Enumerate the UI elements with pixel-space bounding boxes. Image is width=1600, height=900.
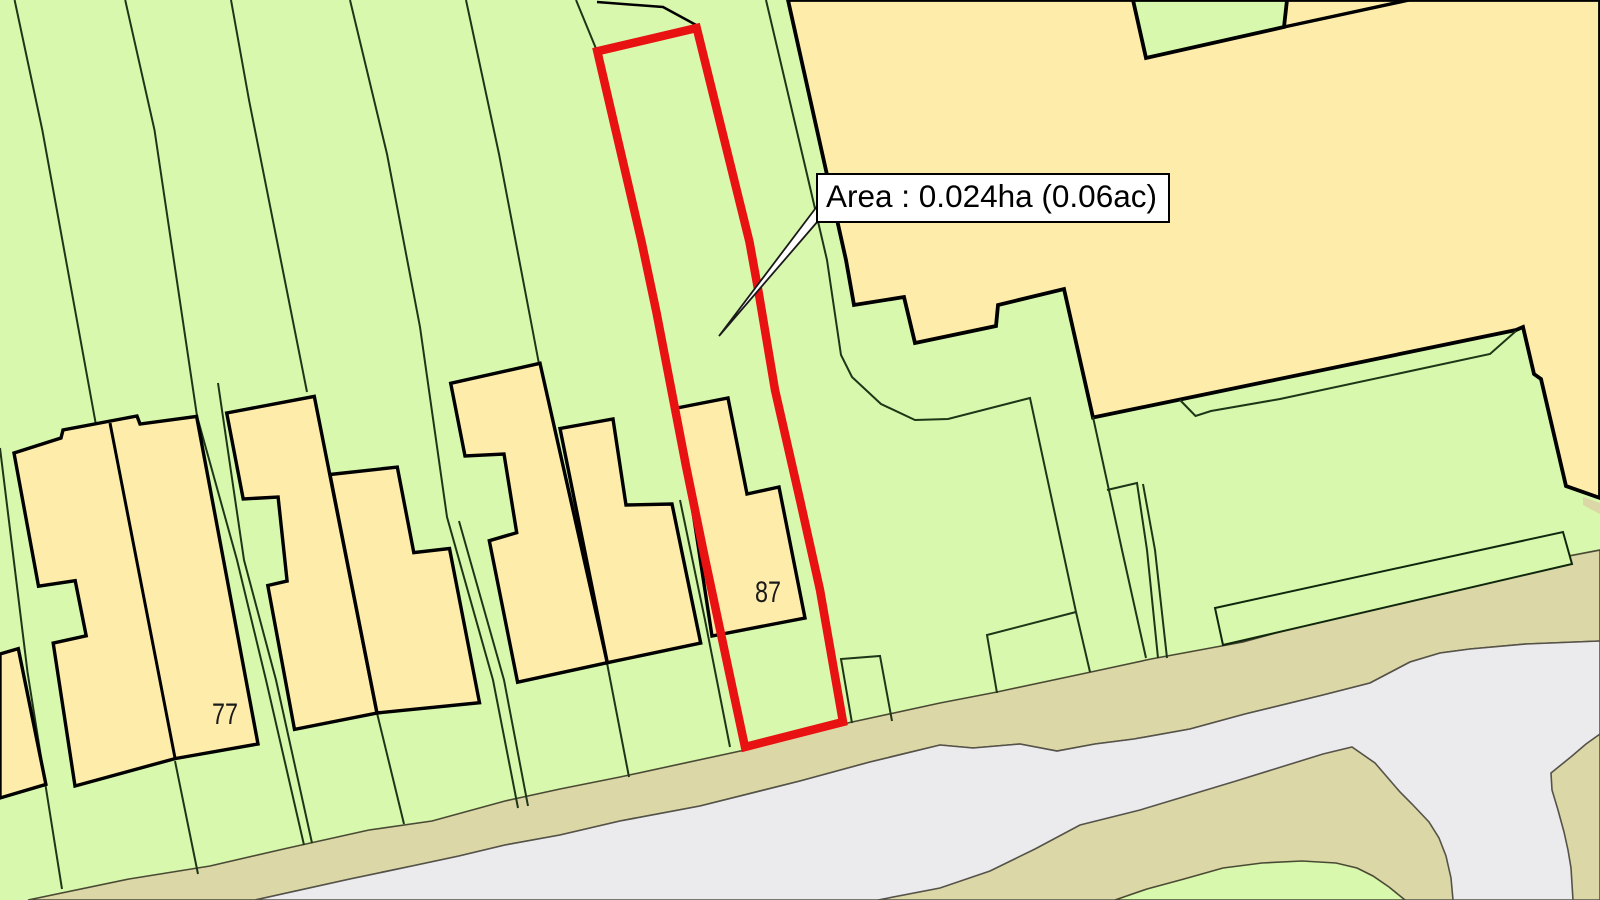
svg-text:Area : 0.024ha (0.06ac): Area : 0.024ha (0.06ac) [826,178,1157,214]
svg-text:87: 87 [755,576,781,609]
svg-text:77: 77 [212,698,238,731]
